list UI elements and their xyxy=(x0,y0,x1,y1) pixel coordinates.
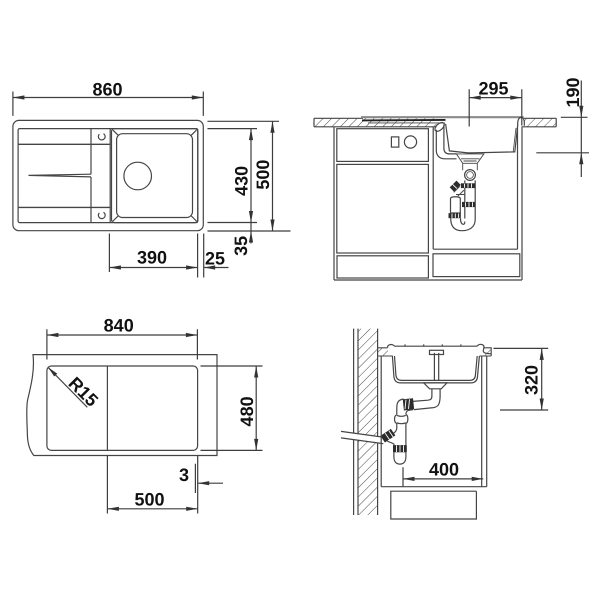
svg-text:400: 400 xyxy=(429,460,459,480)
svg-text:35: 35 xyxy=(231,236,251,256)
svg-text:500: 500 xyxy=(134,490,164,510)
svg-text:390: 390 xyxy=(137,248,167,268)
svg-text:R15: R15 xyxy=(64,373,101,410)
svg-text:840: 840 xyxy=(104,316,134,336)
svg-text:430: 430 xyxy=(231,166,251,196)
svg-text:3: 3 xyxy=(179,465,189,485)
svg-text:190: 190 xyxy=(563,77,583,107)
svg-text:320: 320 xyxy=(522,365,542,395)
svg-text:480: 480 xyxy=(237,396,257,426)
svg-text:295: 295 xyxy=(478,79,508,99)
svg-text:860: 860 xyxy=(92,80,122,100)
svg-text:500: 500 xyxy=(253,160,273,190)
svg-text:25: 25 xyxy=(205,249,225,269)
